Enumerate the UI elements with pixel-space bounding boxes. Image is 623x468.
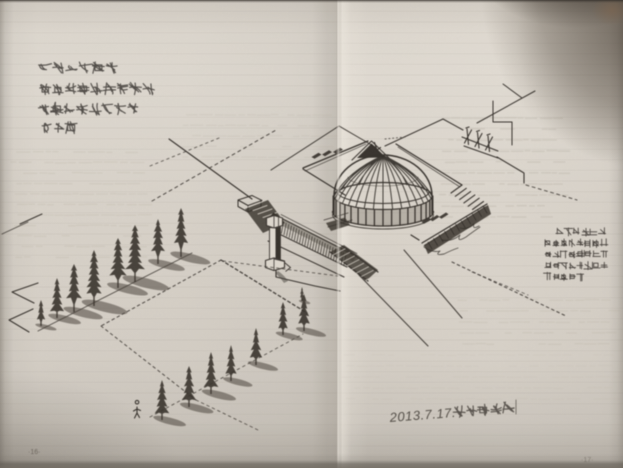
svg-text:·17·: ·17· — [581, 457, 593, 464]
svg-text:·16·: ·16· — [28, 449, 40, 456]
